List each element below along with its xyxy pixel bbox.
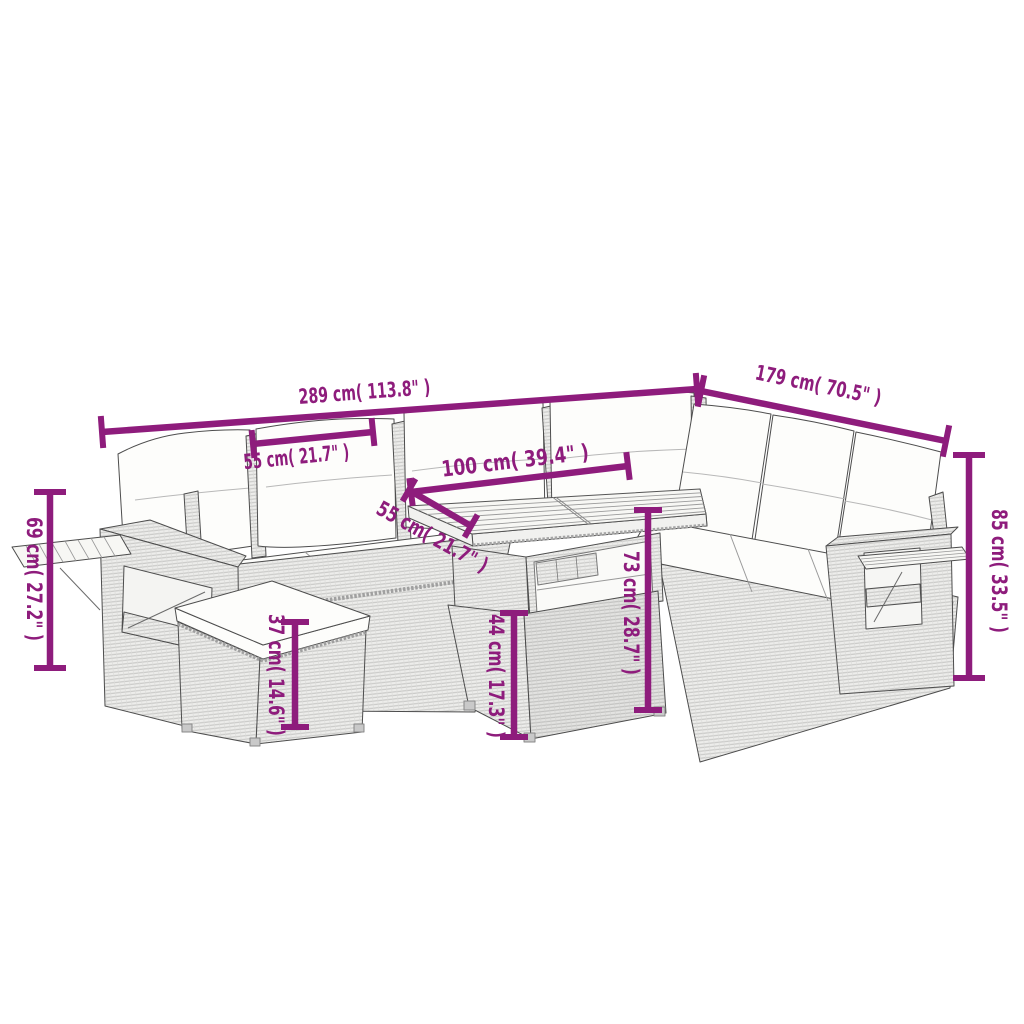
foot	[464, 701, 475, 710]
dimension-label-footstool-height: 37 cm( 14.6" )	[264, 614, 288, 736]
foot	[354, 724, 364, 732]
foot	[250, 738, 260, 746]
dimension-label-table-base-height: 44 cm( 17.3" )	[484, 614, 508, 738]
right-armrest	[826, 527, 970, 694]
product-dimension-diagram: 289 cm( 113.8" ) 179 cm( 70.5" ) 55 cm( …	[0, 0, 1024, 1024]
dimension-label-back-height: 85 cm( 33.5" )	[987, 509, 1011, 633]
foot	[182, 724, 192, 732]
diagram-svg: 289 cm( 113.8" ) 179 cm( 70.5" ) 55 cm( …	[0, 0, 1024, 1024]
shading	[524, 591, 666, 739]
dimension-label-table-height: 73 cm( 28.7" )	[619, 551, 643, 675]
dimension-label-armrest-height: 69 cm( 27.2" )	[22, 517, 46, 641]
